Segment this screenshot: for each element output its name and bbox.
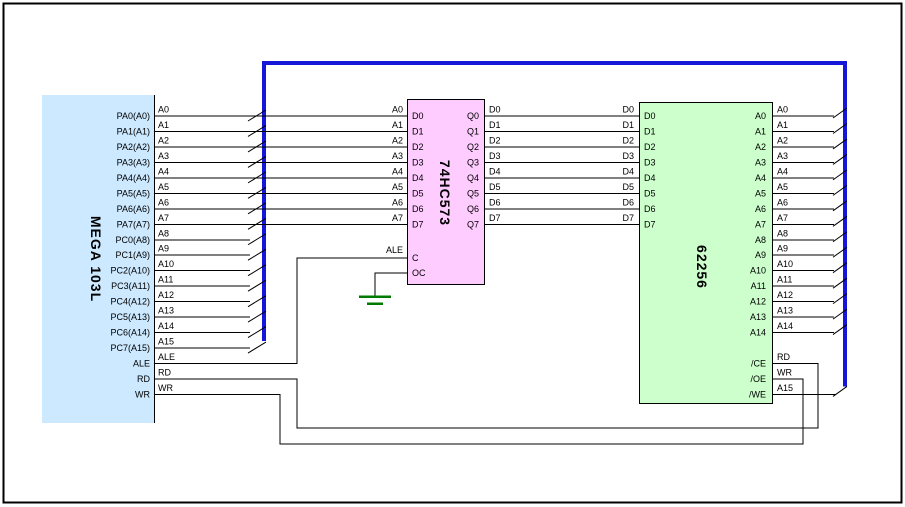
- net-label-d0: D0: [622, 105, 634, 115]
- net-label-d3: D3: [622, 151, 634, 161]
- net-label-rd: RD: [158, 367, 171, 377]
- net-label-a2: A2: [777, 135, 788, 145]
- net-label-d2: D2: [489, 135, 501, 145]
- net-label-d3: D3: [489, 151, 501, 161]
- net-label-d2: D2: [622, 135, 634, 145]
- pin-label-62256-d4: D4: [644, 173, 656, 183]
- net-label-d5: D5: [489, 182, 501, 192]
- pin-label-62256-a8: A8: [755, 235, 766, 245]
- pin-label-mega103l-rd: RD: [137, 374, 150, 384]
- pin-label-mega103l-pa2-a2: PA2(A2): [117, 142, 150, 152]
- pin-label-62256-d7: D7: [644, 219, 656, 229]
- net-label-ale: ALE: [386, 245, 403, 255]
- pin-label-mega103l-pc5-a13: PC5(A13): [110, 312, 150, 322]
- pin-label-62256-a9: A9: [755, 250, 766, 260]
- pin-label-mega103l-ale: ALE: [133, 359, 150, 369]
- net-label-a11: A11: [158, 275, 173, 285]
- pin-label-74hc573-d3: D3: [412, 157, 424, 167]
- net-label-a0: A0: [158, 105, 169, 115]
- pin-label-62256-a10: A10: [750, 266, 766, 276]
- net-label-a14: A14: [777, 321, 793, 331]
- pin-label-62256-d5: D5: [644, 188, 656, 198]
- pin-label-mega103l-pa0-a0: PA0(A0): [117, 111, 150, 121]
- chip-title-74hc573: 74HC573: [437, 160, 453, 226]
- net-label-a12: A12: [158, 290, 174, 300]
- pin-label-74hc573-q6: Q6: [467, 204, 479, 214]
- pin-label-mega103l-pc7-a15: PC7(A15): [110, 343, 150, 353]
- net-label-d6: D6: [489, 197, 501, 207]
- pin-label-mega103l-pa7-a7: PA7(A7): [117, 219, 150, 229]
- pin-label-62256-oe: /OE: [750, 374, 766, 384]
- net-label-a2: A2: [392, 135, 403, 145]
- net-label-rd: RD: [777, 352, 790, 362]
- wire-oc-ground: [375, 273, 407, 296]
- pin-label-62256-a14: A14: [750, 328, 766, 338]
- net-label-a2: A2: [158, 135, 169, 145]
- net-label-a3: A3: [392, 151, 403, 161]
- pin-label-mega103l-pc4-a12: PC4(A12): [110, 297, 150, 307]
- net-label-d5: D5: [622, 182, 634, 192]
- net-label-d1: D1: [622, 120, 634, 130]
- bus-entry-a15-right: [833, 386, 847, 396]
- pin-label-mega103l-pc1-a9: PC1(A9): [115, 250, 150, 260]
- net-label-a13: A13: [158, 306, 174, 316]
- pin-label-mega103l-pa6-a6: PA6(A6): [117, 204, 150, 214]
- pin-label-74hc573-c: C: [412, 253, 419, 263]
- net-label-a1: A1: [392, 120, 403, 130]
- net-label-a9: A9: [777, 244, 788, 254]
- net-label-a1: A1: [777, 120, 788, 130]
- net-label-a14: A14: [158, 321, 174, 331]
- net-label-d7: D7: [622, 213, 634, 223]
- pin-label-74hc573-q7: Q7: [467, 219, 479, 229]
- net-label-a11: A11: [777, 275, 792, 285]
- net-label-a4: A4: [777, 166, 788, 176]
- pin-label-62256-a2: A2: [755, 142, 766, 152]
- pin-label-mega103l-pc2-a10: PC2(A10): [110, 266, 150, 276]
- pin-label-74hc573-q2: Q2: [467, 142, 479, 152]
- net-label-a4: A4: [158, 166, 169, 176]
- net-label-a9: A9: [158, 244, 169, 254]
- net-label-a7: A7: [158, 213, 169, 223]
- pin-label-mega103l-pa1-a1: PA1(A1): [117, 126, 150, 136]
- pin-label-mega103l-pa5-a5: PA5(A5): [117, 188, 150, 198]
- pin-label-62256-d6: D6: [644, 204, 656, 214]
- pin-label-74hc573-d5: D5: [412, 188, 424, 198]
- net-label-a15: A15: [777, 383, 793, 393]
- net-label-a12: A12: [777, 290, 793, 300]
- pin-label-62256-a6: A6: [755, 204, 766, 214]
- pin-label-74hc573-d1: D1: [412, 126, 424, 136]
- net-label-a7: A7: [392, 213, 403, 223]
- pin-label-mega103l-pc3-a11: PC3(A11): [111, 281, 150, 291]
- pin-label-mega103l-pc6-a14: PC6(A14): [110, 328, 150, 338]
- net-label-a1: A1: [158, 120, 169, 130]
- net-label-a8: A8: [158, 228, 169, 238]
- pin-label-74hc573-d4: D4: [412, 173, 424, 183]
- pin-label-62256-we: /WE: [749, 389, 766, 399]
- net-label-a10: A10: [158, 259, 174, 269]
- schematic-canvas: MEGA 103L74HC57362256PA0(A0)PA1(A1)PA2(A…: [0, 0, 905, 507]
- pin-label-62256-a11: A11: [751, 281, 766, 291]
- pin-label-74hc573-q5: Q5: [467, 188, 479, 198]
- net-label-a6: A6: [392, 197, 403, 207]
- net-label-a0: A0: [392, 105, 403, 115]
- pin-label-62256-d3: D3: [644, 157, 656, 167]
- net-label-a13: A13: [777, 306, 793, 316]
- pin-label-62256-a1: A1: [755, 126, 766, 136]
- net-label-d6: D6: [622, 197, 634, 207]
- circuit-schematic: MEGA 103L74HC57362256PA0(A0)PA1(A1)PA2(A…: [0, 0, 905, 507]
- pin-label-62256-a3: A3: [755, 157, 766, 167]
- pin-label-74hc573-q3: Q3: [467, 157, 479, 167]
- net-label-a0: A0: [777, 105, 788, 115]
- net-label-a5: A5: [158, 182, 169, 192]
- pin-label-62256-d2: D2: [644, 142, 656, 152]
- pin-label-62256-a7: A7: [755, 219, 766, 229]
- pin-label-62256-d0: D0: [644, 111, 656, 121]
- pin-label-mega103l-pa3-a3: PA3(A3): [117, 157, 150, 167]
- pin-label-62256-a5: A5: [755, 188, 766, 198]
- net-label-a7: A7: [777, 213, 788, 223]
- net-label-d1: D1: [489, 120, 501, 130]
- net-label-d4: D4: [489, 166, 501, 176]
- pin-label-62256-a4: A4: [755, 173, 766, 183]
- chip-title-mega103l: MEGA 103L: [88, 216, 104, 302]
- pin-label-mega103l-pa4-a4: PA4(A4): [117, 173, 150, 183]
- net-label-d7: D7: [489, 213, 501, 223]
- net-label-d0: D0: [489, 105, 501, 115]
- pin-label-74hc573-q1: Q1: [467, 126, 479, 136]
- net-label-a10: A10: [777, 259, 793, 269]
- pin-label-62256-a0: A0: [755, 111, 766, 121]
- pin-label-74hc573-d6: D6: [412, 204, 424, 214]
- net-label-a6: A6: [777, 197, 788, 207]
- net-label-ale: ALE: [158, 352, 175, 362]
- pin-label-74hc573-q0: Q0: [467, 111, 479, 121]
- net-label-a6: A6: [158, 197, 169, 207]
- net-label-wr: WR: [158, 383, 173, 393]
- pin-label-74hc573-d2: D2: [412, 142, 424, 152]
- net-label-a5: A5: [392, 182, 403, 192]
- net-label-a5: A5: [777, 182, 788, 192]
- pin-label-62256-d1: D1: [644, 126, 656, 136]
- pin-label-mega103l-pc0-a8: PC0(A8): [115, 235, 150, 245]
- net-label-wr: WR: [777, 367, 792, 377]
- net-label-a3: A3: [158, 151, 169, 161]
- pin-label-62256-a12: A12: [750, 297, 766, 307]
- chip-title-62256: 62256: [694, 245, 710, 289]
- pin-label-74hc573-d7: D7: [412, 219, 424, 229]
- pin-label-74hc573-oc: OC: [412, 268, 426, 278]
- net-label-a8: A8: [777, 228, 788, 238]
- bus-entry-a15: [248, 342, 266, 353]
- net-label-d4: D4: [622, 166, 634, 176]
- pin-label-74hc573-d0: D0: [412, 111, 424, 121]
- net-label-a3: A3: [777, 151, 788, 161]
- pin-label-74hc573-q4: Q4: [467, 173, 479, 183]
- pin-label-62256-ce: /CE: [751, 359, 766, 369]
- net-label-a4: A4: [392, 166, 403, 176]
- pin-label-mega103l-wr: WR: [135, 389, 150, 399]
- net-label-a15: A15: [158, 337, 174, 347]
- pin-label-62256-a13: A13: [750, 312, 766, 322]
